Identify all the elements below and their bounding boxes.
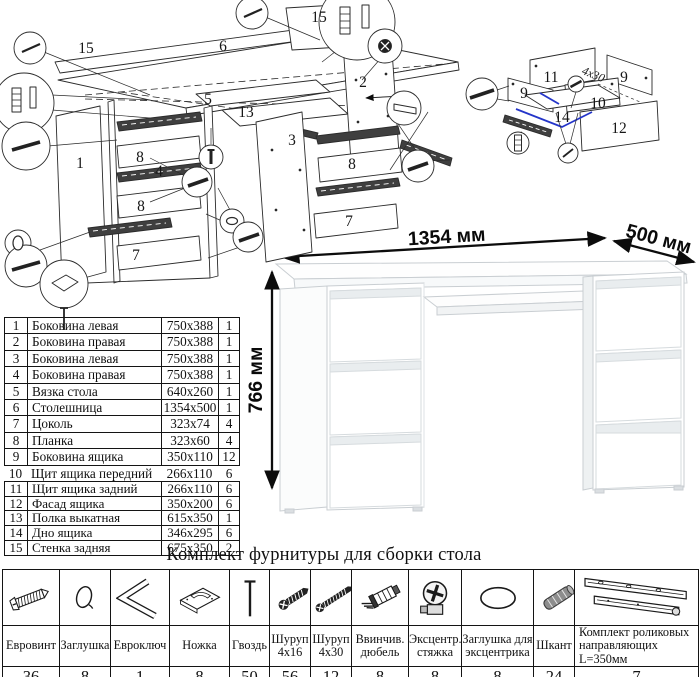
- hardware-qty: 12: [311, 666, 352, 677]
- part-size: 640x260: [162, 384, 219, 399]
- hardware-name: Шуруп 4x30: [311, 626, 352, 667]
- part-size: 350x110: [162, 449, 219, 464]
- diagram-label: 766 мм: [245, 347, 267, 414]
- part-qty: 1: [219, 351, 239, 366]
- table-row: 3Боковина левая750x3881: [5, 350, 239, 366]
- table-row: 13Полка выкатная615x3501: [5, 510, 239, 525]
- part-name: Дно ящика: [28, 526, 162, 540]
- diagram-label: 8: [137, 198, 145, 215]
- table-row: 11Щит ящика задний266x1106: [5, 482, 239, 496]
- part-number: 11: [5, 482, 28, 496]
- table-row: 1Боковина левая750x3881: [5, 318, 239, 333]
- part-qty: 6: [219, 482, 239, 496]
- table-row: 6Столешница1354x5001: [5, 399, 239, 415]
- table-row: 8Планка323x604: [5, 432, 239, 448]
- part-qty: 1: [219, 334, 239, 349]
- wood-dowel-icon: [534, 570, 575, 626]
- hardware-name: Шкант: [534, 626, 575, 667]
- part-number: 14: [5, 526, 28, 540]
- parts-table-upper: 1Боковина левая750x38812Боковина правая7…: [4, 317, 240, 466]
- diagram-label: 3: [288, 132, 296, 149]
- diagram-label: 10: [590, 95, 606, 112]
- hardware-name: Гвоздь: [230, 626, 270, 667]
- cam-lock-icon: [409, 570, 462, 626]
- diagram-label: 13: [238, 104, 254, 121]
- hardware-qty: 56: [270, 666, 311, 677]
- part-size: 346x295: [162, 526, 219, 540]
- desk-render: [272, 238, 694, 513]
- part-size: 266x110: [162, 482, 219, 496]
- part-number: 12: [5, 497, 28, 511]
- part-qty: 6: [219, 497, 239, 511]
- part-size: 750x388: [162, 351, 219, 366]
- parts-table-middle-row: 10Щит ящика передний266x1106: [4, 466, 240, 481]
- part-number: 9: [5, 449, 28, 464]
- foot-icon: [170, 570, 230, 626]
- part-size: 323x60: [162, 433, 219, 448]
- eurovint-icon: [3, 570, 60, 626]
- part-number: 5: [5, 384, 28, 399]
- diagram-label: 15: [311, 9, 327, 26]
- hardware-icons-row: [3, 570, 699, 626]
- table-row: 5Вязка стола640x2601: [5, 383, 239, 399]
- diagram-label: 1: [76, 155, 84, 172]
- diagram-label: 7: [345, 213, 353, 230]
- hardware-qty: 8: [409, 666, 462, 677]
- table-row: 4Боковина правая750x3881: [5, 366, 239, 382]
- table-row: 2Боковина правая750x3881: [5, 333, 239, 349]
- diagram-label: 9: [520, 85, 528, 102]
- hardware-name: Ножка: [170, 626, 230, 667]
- diagram-label: 15: [78, 40, 94, 57]
- part-qty: 1: [219, 367, 239, 382]
- diagram-label: 5: [204, 91, 212, 108]
- diagram-label: 6: [219, 38, 227, 55]
- diagram-label: 4: [155, 163, 163, 180]
- part-qty: 4: [219, 433, 239, 448]
- part-size: 750x388: [162, 367, 219, 382]
- table-row: 12Фасад ящика350x2006: [5, 496, 239, 511]
- part-number: 8: [5, 433, 28, 448]
- cap-icon: [60, 570, 111, 626]
- diagram-label: 14: [554, 109, 570, 126]
- hardware-qty: 8: [60, 666, 111, 677]
- part-qty: 1: [219, 400, 239, 415]
- hardware-qty: 36: [3, 666, 60, 677]
- hardware-name: Комплект роликовых направляющих L=350мм: [575, 626, 699, 667]
- hardware-qty: 50: [230, 666, 270, 677]
- hardware-qty: 24: [534, 666, 575, 677]
- part-name: Полка выкатная: [28, 511, 162, 525]
- screw-long-icon: [311, 570, 352, 626]
- assembly-instruction-sheet: 1561525133848718711991014124x301354 мм50…: [0, 0, 700, 677]
- part-size: 750x388: [162, 334, 219, 349]
- part-qty: 1: [219, 384, 239, 399]
- table-row: 7Цоколь323x744: [5, 415, 239, 431]
- diagram-label: 2: [359, 74, 367, 91]
- hardware-name: Евроключ: [111, 626, 170, 667]
- cam-cap-icon: [462, 570, 534, 626]
- hardware-name: Шуруп 4x16: [270, 626, 311, 667]
- part-name: Цоколь: [28, 416, 162, 431]
- diagram-label: 7: [132, 247, 140, 264]
- table-row: 14Дно ящика346x2956: [5, 525, 239, 540]
- hardware-name: Ввинчив. дюбель: [352, 626, 409, 667]
- hardware-qty: 7: [575, 666, 699, 677]
- part-name: Щит ящика передний: [27, 466, 161, 481]
- part-name: Щит ящика задний: [28, 482, 162, 496]
- drawer-assembly-diagram: [466, 48, 659, 163]
- diagram-label: 8: [348, 156, 356, 173]
- part-name: Боковина ящика: [28, 449, 162, 464]
- part-name: Планка: [28, 433, 162, 448]
- diagram-label: 11: [544, 69, 559, 86]
- part-size: 750x388: [162, 318, 219, 333]
- part-number: 6: [5, 400, 28, 415]
- hardware-name: Заглушка для эксцентрика: [462, 626, 534, 667]
- screw-short-icon: [270, 570, 311, 626]
- hardware-qty: 1: [111, 666, 170, 677]
- part-number: 10: [4, 466, 27, 481]
- part-size: 615x350: [162, 511, 219, 525]
- part-size: 323x74: [162, 416, 219, 431]
- parts-table: 1Боковина левая750x38812Боковина правая7…: [4, 317, 240, 556]
- diagram-label: 8: [136, 149, 144, 166]
- part-name: Боковина правая: [28, 334, 162, 349]
- hardware-names-row: ЕвровинтЗаглушкаЕвроключНожкаГвоздьШуруп…: [3, 626, 699, 667]
- part-qty: 6: [219, 526, 239, 540]
- hardware-name: Эксцентр. стяжка: [409, 626, 462, 667]
- hardware-kit-title: Комплект фурнитуры для сборки стола: [0, 545, 648, 566]
- part-name: Вязка стола: [28, 384, 162, 399]
- dowel-screw-icon: [352, 570, 409, 626]
- part-number: 13: [5, 511, 28, 525]
- part-qty: 4: [219, 416, 239, 431]
- hardware-qty: 8: [352, 666, 409, 677]
- part-name: Боковина левая: [28, 351, 162, 366]
- part-qty: 1: [219, 318, 239, 333]
- hardware-kit-table: ЕвровинтЗаглушкаЕвроключНожкаГвоздьШуруп…: [2, 569, 698, 677]
- table-row: 9Боковина ящика350x11012: [5, 448, 239, 464]
- hardware-name: Евровинт: [3, 626, 60, 667]
- diagram-label: 12: [611, 120, 627, 137]
- drawer-slide-icon: [575, 570, 699, 626]
- hex-key-icon: [111, 570, 170, 626]
- part-number: 4: [5, 367, 28, 382]
- part-size: 1354x500: [162, 400, 219, 415]
- part-size: 350x200: [162, 497, 219, 511]
- part-name: Столешница: [28, 400, 162, 415]
- part-qty: 12: [219, 449, 239, 464]
- nail-icon: [230, 570, 270, 626]
- part-name: Боковина правая: [28, 367, 162, 382]
- part-name: Боковина левая: [28, 318, 162, 333]
- part-qty: 1: [219, 511, 239, 525]
- part-qty: 6: [218, 466, 240, 481]
- part-number: 1: [5, 318, 28, 333]
- part-number: 7: [5, 416, 28, 431]
- part-number: 2: [5, 334, 28, 349]
- hardware-qty: 8: [170, 666, 230, 677]
- hardware-name: Заглушка: [60, 626, 111, 667]
- diagram-label: 9: [620, 69, 628, 86]
- hardware-qty-row: 36818505612888247: [3, 666, 699, 677]
- hardware-qty: 8: [462, 666, 534, 677]
- part-name: Фасад ящика: [28, 497, 162, 511]
- part-size: 266x110: [161, 466, 218, 481]
- part-number: 3: [5, 351, 28, 366]
